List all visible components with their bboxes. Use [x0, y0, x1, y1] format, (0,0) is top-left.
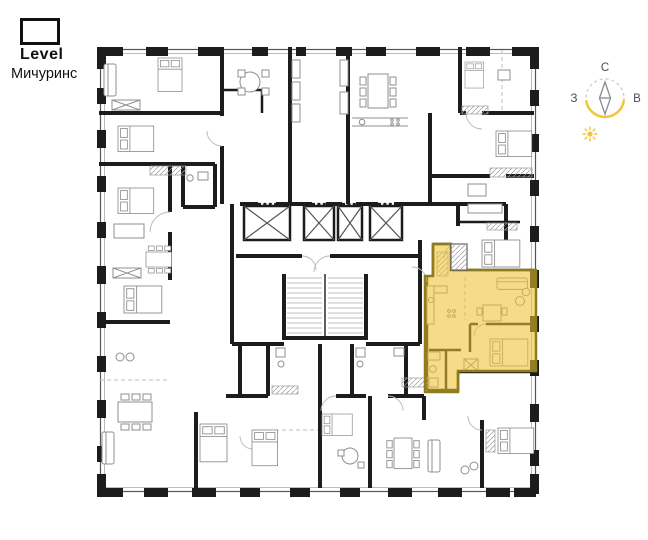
bed-symbol [498, 428, 534, 454]
hatched-strip [272, 386, 298, 394]
hatched-strip [487, 223, 517, 230]
bed-symbol [465, 62, 484, 88]
hatched-strip [490, 168, 532, 177]
compass-west-label: З [571, 93, 578, 105]
bed-symbol [496, 131, 532, 157]
dining-table-symbol [387, 438, 419, 469]
bed-symbol [118, 126, 154, 152]
compass-icon: С З В [571, 62, 642, 117]
desk-symbol [114, 224, 144, 238]
armchair-symbol [498, 70, 510, 80]
bed-symbol [158, 58, 182, 92]
wardrobe-symbol [112, 100, 140, 110]
bed-symbol [200, 424, 227, 462]
hatched-strip [150, 166, 186, 175]
hatched-strip [486, 430, 495, 452]
dining-table-symbol [118, 394, 152, 430]
floor-plan-svg: С З В [0, 0, 648, 540]
elevator-core [244, 206, 402, 240]
dining-table-symbol [360, 74, 396, 108]
sofa-symbol [102, 432, 114, 464]
level-logo: Level Мичуринс [20, 18, 77, 82]
logo-brand-text: Level [20, 47, 77, 63]
elevator-x-icon [244, 206, 402, 240]
kitchen-counter-symbol [468, 204, 502, 213]
compass-east-label: В [633, 93, 641, 105]
wardrobe-symbol [113, 268, 141, 278]
compass-north-label: С [601, 62, 609, 74]
dining-table-symbol [146, 246, 172, 273]
hatched-wall-block [451, 244, 467, 270]
bed-symbol [482, 240, 520, 267]
hatched-strip [462, 106, 488, 114]
logo-square-icon [20, 18, 60, 45]
bed-symbol [322, 414, 352, 436]
sofa-symbol [428, 440, 440, 472]
sun-icon [583, 127, 597, 141]
desk-symbol [468, 184, 486, 196]
furniture [102, 58, 534, 474]
sofa-symbol [104, 64, 116, 96]
bed-symbol [124, 286, 162, 313]
bed-symbol [118, 188, 154, 214]
floor-plan-image[interactable]: Level Мичуринс [0, 0, 648, 540]
staircase [287, 274, 363, 338]
bed-symbol [252, 430, 278, 466]
logo-project-text: Мичуринс [11, 67, 77, 82]
